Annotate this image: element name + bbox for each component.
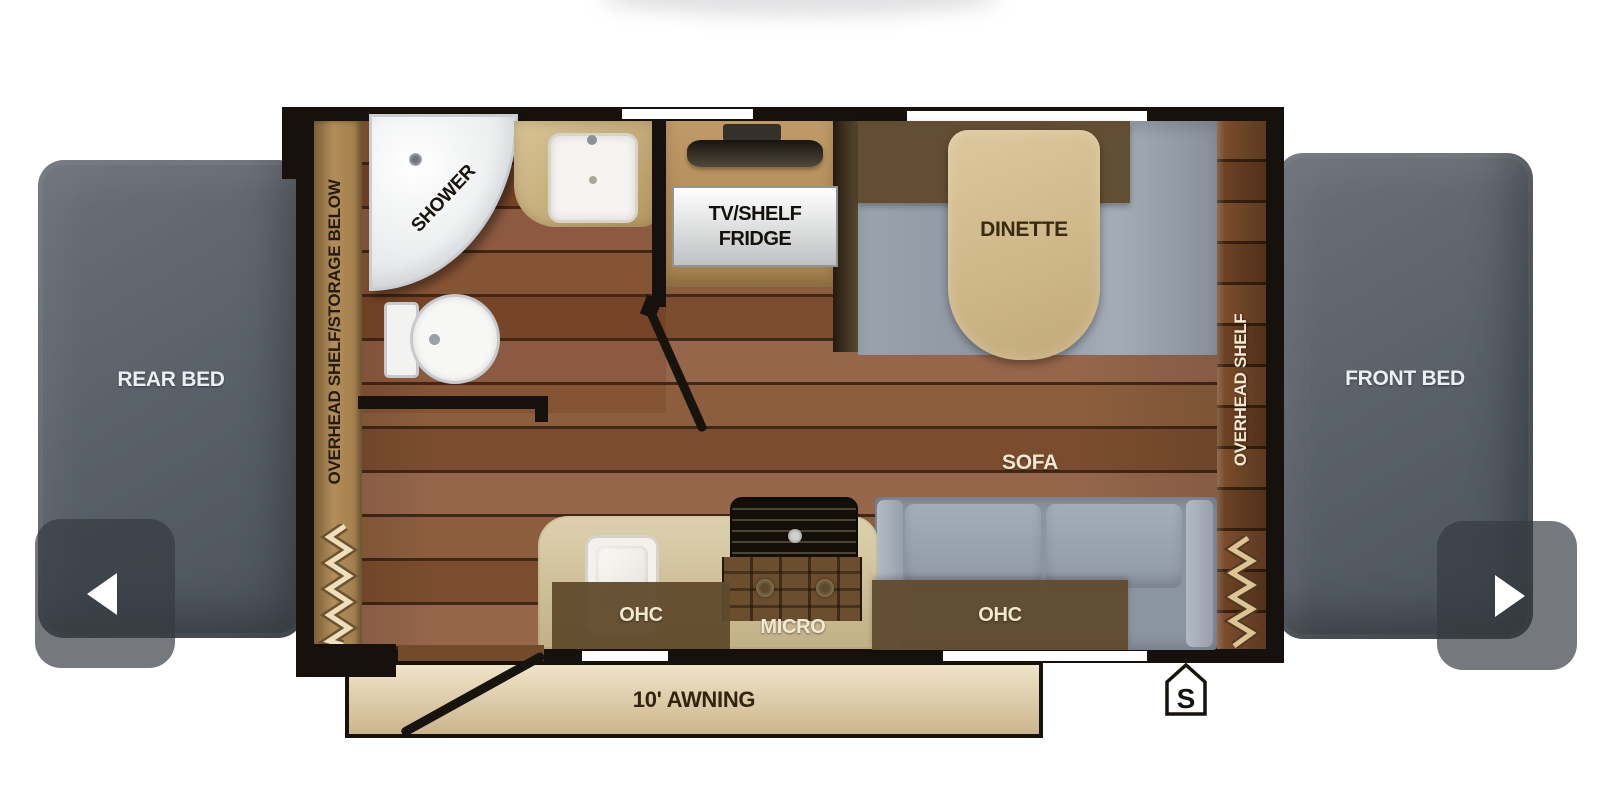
bathroom-wall-end (535, 396, 548, 422)
micro-label: MICRO (733, 616, 853, 639)
window (907, 111, 1147, 121)
tv-label-line2: FRIDGE (719, 227, 792, 252)
tv-label-line1: TV/SHELF (709, 202, 802, 227)
overhead-shelf-label: OVERHEAD SHELF (1231, 285, 1257, 495)
floorplan-carousel-viewport: REAR BED FRONT BED OVERHEAD SHELF/STORAG… (0, 0, 1600, 807)
burner-knob-icon (788, 529, 802, 543)
chevron-left-icon (87, 573, 117, 615)
previous-image-edge (600, 0, 1000, 16)
carousel-next-button[interactable] (1437, 521, 1577, 670)
shower-drain-icon (409, 153, 422, 166)
wall-flange (282, 107, 298, 179)
spare-tire-marker: S (1163, 662, 1209, 718)
overhead-shelf-storage-label: OVERHEAD SHELF/STORAGE BELOW (325, 130, 351, 534)
window (582, 651, 668, 661)
tv-mount-icon (723, 124, 781, 141)
spare-marker-letter: S (1177, 683, 1196, 714)
tv-icon (687, 140, 823, 167)
toilet-icon (410, 294, 500, 384)
window (943, 651, 1147, 661)
sofa-overhead-cabinet: OHC (872, 580, 1128, 650)
toilet-flush-icon (429, 334, 440, 345)
bathroom-wall (358, 396, 548, 409)
canvas-fold-zigzag-icon (1220, 536, 1264, 648)
tv-shelf-fridge-label: TV/SHELF FRIDGE (672, 186, 838, 267)
dinette-table: DINETTE (948, 130, 1100, 360)
burner-knob-icon (756, 579, 774, 597)
kitchen-ohc-label: OHC (619, 604, 663, 627)
microwave-range-icon (722, 557, 862, 621)
awning: 10' AWNING (345, 661, 1043, 738)
front-bed-label: FRONT BED (1345, 367, 1465, 391)
bathroom-wall (652, 121, 666, 307)
chevron-right-icon (1495, 575, 1525, 617)
kitchen-overhead-cabinet: OHC (552, 582, 730, 649)
canvas-fold-zigzag-icon (317, 524, 361, 646)
sofa-label: SOFA (955, 451, 1105, 475)
burner-knob-icon (816, 579, 834, 597)
sofa-cushion (905, 504, 1041, 588)
awning-label: 10' AWNING (633, 687, 755, 734)
drain-icon (589, 176, 597, 184)
sofa-armrest (1186, 500, 1213, 647)
bathroom-sink-icon (548, 133, 638, 223)
carousel-prev-button[interactable] (35, 519, 175, 668)
dinette-label: DINETTE (980, 218, 1068, 242)
cooktop-icon (730, 497, 858, 559)
rear-bed-label: REAR BED (117, 368, 224, 392)
window (622, 109, 753, 119)
faucet-icon (587, 135, 597, 145)
sofa-cushion (1046, 504, 1182, 588)
entry-step-wall (296, 644, 396, 677)
sofa-ohc-label: OHC (978, 604, 1022, 627)
